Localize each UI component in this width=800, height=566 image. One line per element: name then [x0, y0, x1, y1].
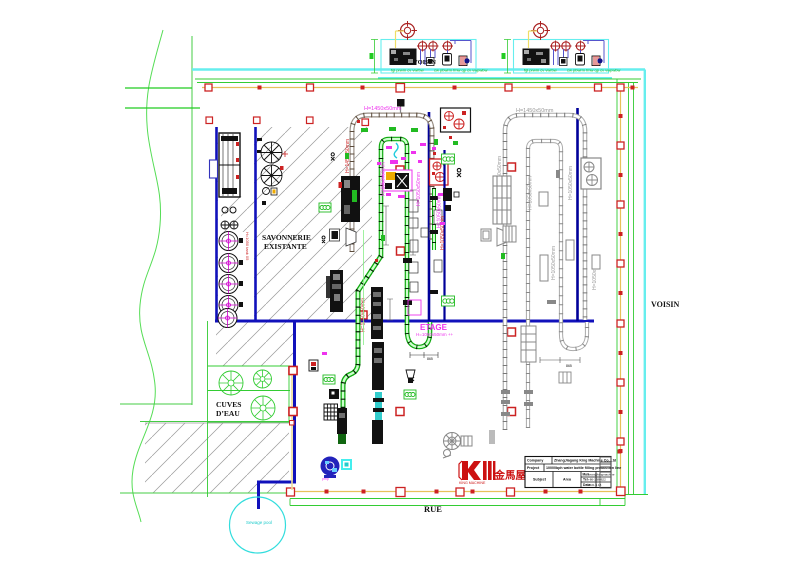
- svg-text:EXISTANTE: EXISTANTE: [264, 242, 307, 251]
- svg-text:865: 865: [427, 357, 433, 361]
- svg-text:SAVONNERIE: SAVONNERIE: [262, 233, 311, 242]
- svg-text:cw pbwrm fmw qp cv vwpwbw: cw pbwrm fmw qp cv vwpwbw: [434, 68, 487, 73]
- svg-text:865: 865: [566, 364, 572, 368]
- svg-text:Tel: Tel: [583, 478, 588, 482]
- svg-text:H=1450x50mm: H=1450x50mm: [364, 106, 402, 112]
- svg-text:H=1050 tank 05: H=1050 tank 05: [245, 232, 250, 261]
- svg-text:CUVES: CUVES: [216, 400, 241, 409]
- svg-text:pmp: pmp: [322, 477, 329, 481]
- svg-text:RUE: RUE: [424, 504, 442, 514]
- svg-text:+86-1380622: +86-1380622: [588, 478, 606, 482]
- svg-text:H=1050x50mm: H=1050x50mm: [568, 166, 574, 200]
- svg-text:ETAGE: ETAGE: [420, 323, 448, 332]
- svg-text:H=1050x50mm: H=1050x50mm: [551, 246, 557, 280]
- svg-text:H=1450x50mm: H=1450x50mm: [516, 108, 554, 114]
- svg-text:Subject: Subject: [533, 478, 547, 482]
- svg-text:H=1050x50mm: H=1050x50mm: [381, 162, 387, 196]
- svg-text:H=1050x50mm ++: H=1050x50mm ++: [416, 332, 454, 337]
- svg-text:VOISIN: VOISIN: [413, 59, 436, 66]
- svg-text:H=1050x50mm: H=1050x50mm: [416, 172, 422, 206]
- svg-text:金馬屋: 金馬屋: [494, 469, 527, 482]
- svg-text:Sewage pool: Sewage pool: [246, 520, 272, 525]
- svg-text:H=1050x50mm: H=1050x50mm: [528, 176, 534, 210]
- svg-text:fgl prwm cv vwrbw: fgl prwm cv vwrbw: [391, 68, 424, 73]
- svg-text:D’EAU: D’EAU: [216, 409, 240, 418]
- svg-text:fgl prwm cv vwrbw: fgl prwm cv vwrbw: [524, 68, 557, 73]
- svg-text:Area: Area: [563, 478, 572, 482]
- svg-text:VOISIN: VOISIN: [651, 300, 680, 309]
- svg-text:Company: Company: [527, 459, 543, 463]
- svg-text:Project: Project: [527, 466, 540, 470]
- svg-text:KING MACHINE: KING MACHINE: [459, 481, 486, 485]
- svg-text:H=1050x50mm: H=1050x50mm: [440, 216, 446, 250]
- svg-text:cw pbwrm fmw qp cv vwpwbw: cw pbwrm fmw qp cv vwpwbw: [567, 68, 620, 73]
